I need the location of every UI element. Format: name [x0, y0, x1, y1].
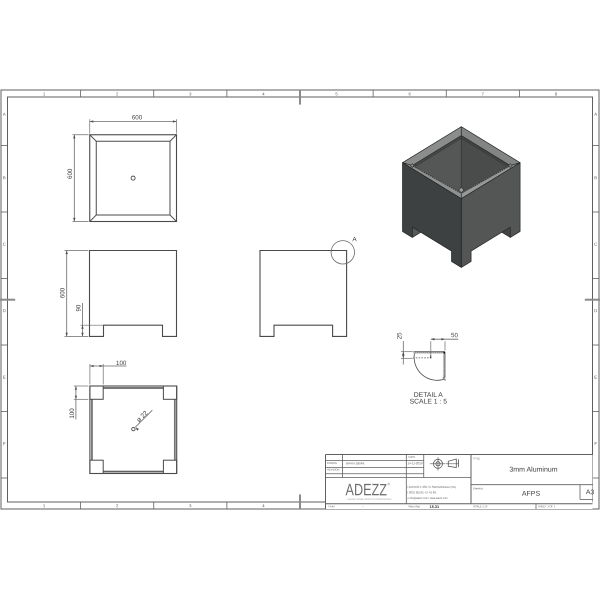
- svg-text:DRAWN: DRAWN: [327, 461, 337, 465]
- svg-text:Mass (kg): Mass (kg): [408, 504, 420, 508]
- svg-text:®: ®: [387, 482, 390, 486]
- svg-text:600: 600: [67, 168, 74, 179]
- svg-text:15.31: 15.31: [430, 505, 440, 509]
- svg-text:NATURALLY DURABLE PRODUCTS FOR: NATURALLY DURABLE PRODUCTS FOR PROFESSIO…: [347, 498, 391, 501]
- svg-text:SCALE 1:10: SCALE 1:10: [473, 504, 488, 508]
- svg-text:TITLE: TITLE: [473, 456, 480, 460]
- svg-text:SHEET 1 OF 1: SHEET 1 OF 1: [538, 504, 556, 508]
- svg-text:D: D: [3, 308, 6, 313]
- svg-text:ADEZZ: ADEZZ: [345, 481, 387, 499]
- svg-text:50: 50: [451, 332, 458, 339]
- svg-text:AFPS: AFPS: [522, 491, 541, 498]
- svg-text:C: C: [594, 242, 597, 247]
- svg-text:100: 100: [116, 360, 127, 367]
- svg-text:A: A: [594, 112, 597, 117]
- svg-text:600: 600: [60, 287, 67, 298]
- svg-text:Color: Color: [328, 504, 334, 508]
- svg-text:3mm Aluminum: 3mm Aluminum: [509, 467, 557, 474]
- svg-text:A: A: [3, 112, 6, 117]
- svg-text:-: -: [362, 504, 363, 508]
- svg-text:90: 90: [76, 304, 83, 311]
- svg-text:Lissenveld 4, 4941 VL Raamsdon: Lissenveld 4, 4941 VL Raamsdonksveer (NL…: [407, 485, 456, 489]
- svg-text:25: 25: [397, 332, 404, 339]
- svg-text:Drawing: Drawing: [473, 486, 483, 490]
- svg-text:F: F: [594, 441, 597, 446]
- svg-text:C: C: [3, 242, 6, 247]
- svg-text:B: B: [594, 175, 597, 180]
- svg-text:F: F: [3, 441, 6, 446]
- svg-text:B: B: [3, 175, 6, 180]
- svg-text:E: E: [3, 375, 6, 380]
- svg-text:DATE: DATE: [408, 455, 415, 459]
- svg-text:D: D: [594, 308, 597, 313]
- svg-text:100: 100: [69, 408, 76, 419]
- svg-text:e info@adezz.com / www.adezz.c: e info@adezz.com / www.adezz.com: [407, 496, 448, 500]
- svg-text:t 0031 (0)162- 57 41 68,: t 0031 (0)162- 57 41 68,: [407, 490, 436, 494]
- svg-text:E: E: [594, 375, 597, 380]
- svg-text:A: A: [352, 236, 357, 243]
- svg-text:Benno Zijlstra: Benno Zijlstra: [346, 461, 365, 465]
- svg-text:14-11-2019: 14-11-2019: [407, 461, 422, 465]
- svg-text:A3: A3: [586, 489, 595, 496]
- svg-text:REVISION: REVISION: [327, 468, 340, 472]
- svg-text:SCALE 1 : 5: SCALE 1 : 5: [410, 398, 448, 405]
- svg-text:600: 600: [132, 114, 143, 121]
